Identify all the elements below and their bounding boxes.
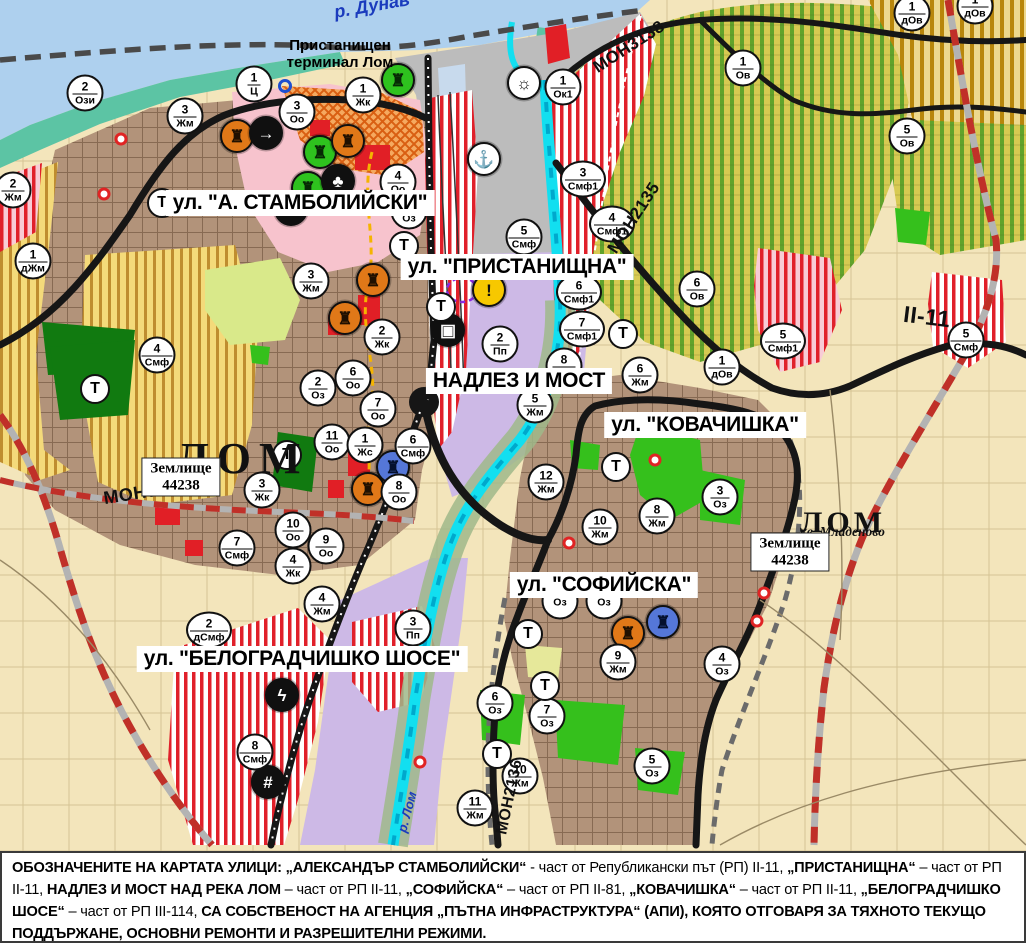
street-label: ул. "СОФИЙСКА" bbox=[510, 572, 698, 598]
zoning-map[interactable]: ♜→♜♜♜♣▲♜♜♜♜♜♜♜⚓☼▣!ϟ# 2Ози1Ц3Оо1Жк1Ок13Жм… bbox=[0, 0, 1026, 943]
legend-text-segment: - част от Републикански път (РП) II-11, bbox=[526, 860, 787, 876]
legend-text-segment: „СОФИЙСКА“ bbox=[406, 882, 504, 898]
legend-text-segment: – част от РП III-114, bbox=[65, 904, 202, 920]
legend-text-segment: „ПРИСТАНИЩНА“ bbox=[787, 860, 915, 876]
street-label: ул. "КОВАЧИШКА" bbox=[604, 412, 806, 438]
street-labels: ул. "А. СТАМБОЛИЙСКИ"ул. "ПРИСТАНИЩНА"НА… bbox=[0, 0, 1026, 943]
legend-text-segment: НАДЛЕЗ И МОСТ НАД РЕКА ЛОМ bbox=[47, 882, 281, 898]
street-label: ул. "БЕЛОГРАДЧИШКО ШОСЕ" bbox=[137, 646, 468, 672]
legend-text-segment: „КОВАЧИШКА“ bbox=[629, 882, 736, 898]
legend-text-segment: „АЛЕКСАНДЪР СТАМБОЛИЙСКИ“ bbox=[286, 860, 527, 876]
legend-text-segment: – част от РП II-81, bbox=[503, 882, 629, 898]
legend-note: ОБОЗНАЧЕНИТЕ НА КАРТАТА УЛИЦИ: „АЛЕКСАНД… bbox=[0, 851, 1026, 943]
legend-text-segment: ОБОЗНАЧЕНИТЕ НА КАРТАТА УЛИЦИ: bbox=[12, 860, 286, 876]
street-label: ул. "А. СТАМБОЛИЙСКИ" bbox=[166, 190, 435, 216]
legend-text-segment: – част от РП II-11, bbox=[281, 882, 406, 898]
legend-text-segment: – част от РП II-11, bbox=[736, 882, 861, 898]
street-label: ул. "ПРИСТАНИЩНА" bbox=[401, 254, 634, 280]
street-label: НАДЛЕЗ И МОСТ bbox=[426, 368, 612, 394]
